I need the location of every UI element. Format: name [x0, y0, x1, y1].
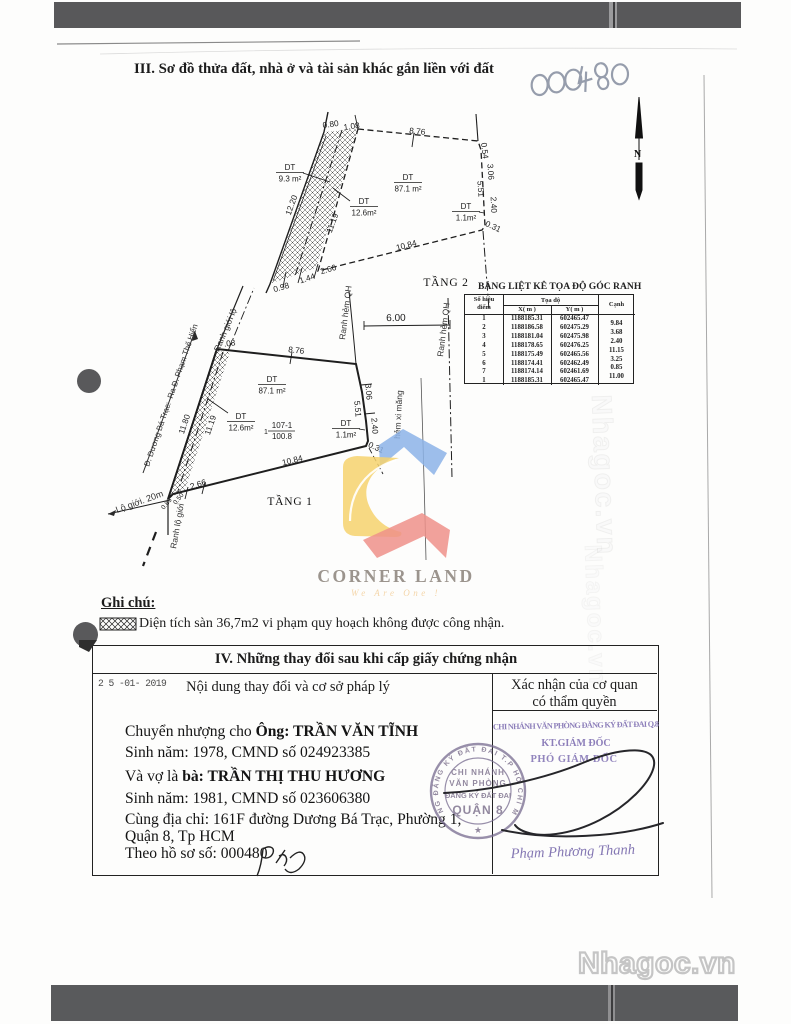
svg-text:PHÓ GIÁM ĐỐC: PHÓ GIÁM ĐỐC [530, 752, 617, 765]
svg-text:CHI NHÁNH: CHI NHÁNH [451, 768, 505, 777]
svg-text:CHI NHÁNH VĂN PHÒNG ĐĂNG KÝ ĐẤ: CHI NHÁNH VĂN PHÒNG ĐĂNG KÝ ĐẤT ĐAI Q.8 [493, 719, 659, 732]
svg-text:QUẬN 8: QUẬN 8 [452, 802, 503, 817]
svg-text:Phạm Phương Thanh: Phạm Phương Thanh [509, 842, 635, 862]
svg-text:★: ★ [474, 825, 482, 835]
svg-text:KT.GIÁM ĐỐC: KT.GIÁM ĐỐC [541, 736, 610, 749]
